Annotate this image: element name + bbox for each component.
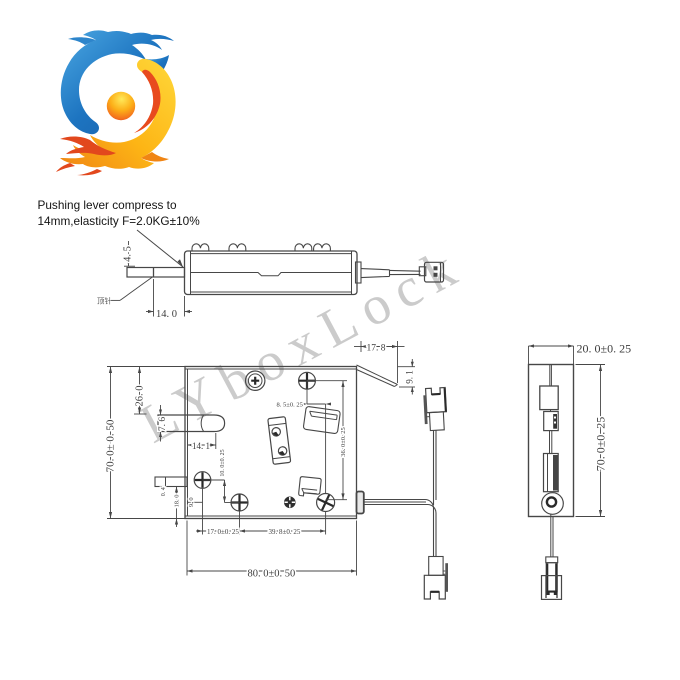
svg-text:26. 0: 26. 0 <box>135 386 146 407</box>
svg-text:9. 1: 9. 1 <box>405 370 415 384</box>
svg-text:14. 0: 14. 0 <box>156 309 177 320</box>
svg-text:顶针: 顶针 <box>97 296 112 306</box>
svg-text:10. 0±0. 25: 10. 0±0. 25 <box>220 449 226 476</box>
svg-text:80. 0±0. 50: 80. 0±0. 50 <box>248 569 296 580</box>
svg-text:14mm,elasticity F=2.0KG±10%: 14mm,elasticity F=2.0KG±10% <box>38 214 201 228</box>
svg-text:0. 4: 0. 4 <box>161 487 167 496</box>
svg-text:Pushing lever compress to: Pushing lever compress to <box>38 198 177 212</box>
svg-text:36. 0±0. 25: 36. 0±0. 25 <box>340 427 347 457</box>
svg-text:70. 0±0. 25: 70. 0±0. 25 <box>594 417 608 472</box>
svg-text:17. 0±0. 25: 17. 0±0. 25 <box>207 528 239 536</box>
svg-text:17. 8: 17. 8 <box>367 344 386 354</box>
svg-text:9. 0: 9. 0 <box>188 497 195 507</box>
svg-text:39. 8±0. 25: 39. 8±0. 25 <box>269 528 301 536</box>
svg-text:70. 0± 0. 50: 70. 0± 0. 50 <box>105 419 117 472</box>
svg-text:14. 1: 14. 1 <box>192 441 210 451</box>
svg-text:7. 6: 7. 6 <box>158 417 168 432</box>
svg-text:18. 0: 18. 0 <box>173 495 180 508</box>
svg-text:4. 5: 4. 5 <box>123 246 134 262</box>
svg-text:20. 0±0. 25: 20. 0±0. 25 <box>577 341 632 355</box>
svg-text:8. 5±0. 25: 8. 5±0. 25 <box>277 402 303 409</box>
